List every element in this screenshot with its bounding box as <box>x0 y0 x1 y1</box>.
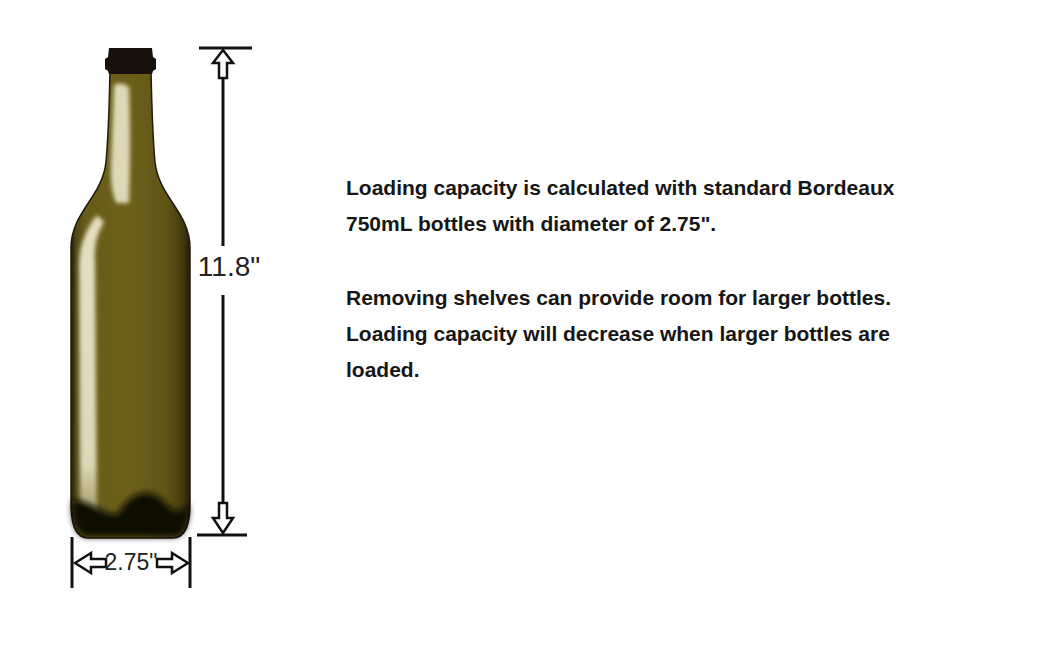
description-line: Loading capacity is calculated with stan… <box>346 170 966 206</box>
width-arrow-left-icon <box>75 553 106 573</box>
height-dimension <box>197 48 252 535</box>
description-paragraph-1: Loading capacity is calculated with stan… <box>346 170 966 242</box>
bottle-dimension-diagram: 11.8" 2.75" Loading capacity is calculat… <box>0 0 1042 656</box>
bottle-cap <box>105 48 156 74</box>
description-text: Loading capacity is calculated with stan… <box>346 170 966 388</box>
height-arrow-up-icon <box>213 50 233 78</box>
bottle-neck-highlight <box>111 83 130 203</box>
description-line: 750mL bottles with diameter of 2.75". <box>346 206 966 242</box>
description-paragraph-2: Removing shelves can provide room for la… <box>346 280 966 388</box>
width-dimension-label: 2.75" <box>103 551 159 574</box>
height-dimension-label: 11.8" <box>197 253 261 281</box>
description-line: loaded. <box>346 352 966 388</box>
height-arrow-down-icon <box>213 503 233 533</box>
width-arrow-right-icon <box>157 553 188 573</box>
description-line: Loading capacity will decrease when larg… <box>346 316 966 352</box>
description-line: Removing shelves can provide room for la… <box>346 280 966 316</box>
